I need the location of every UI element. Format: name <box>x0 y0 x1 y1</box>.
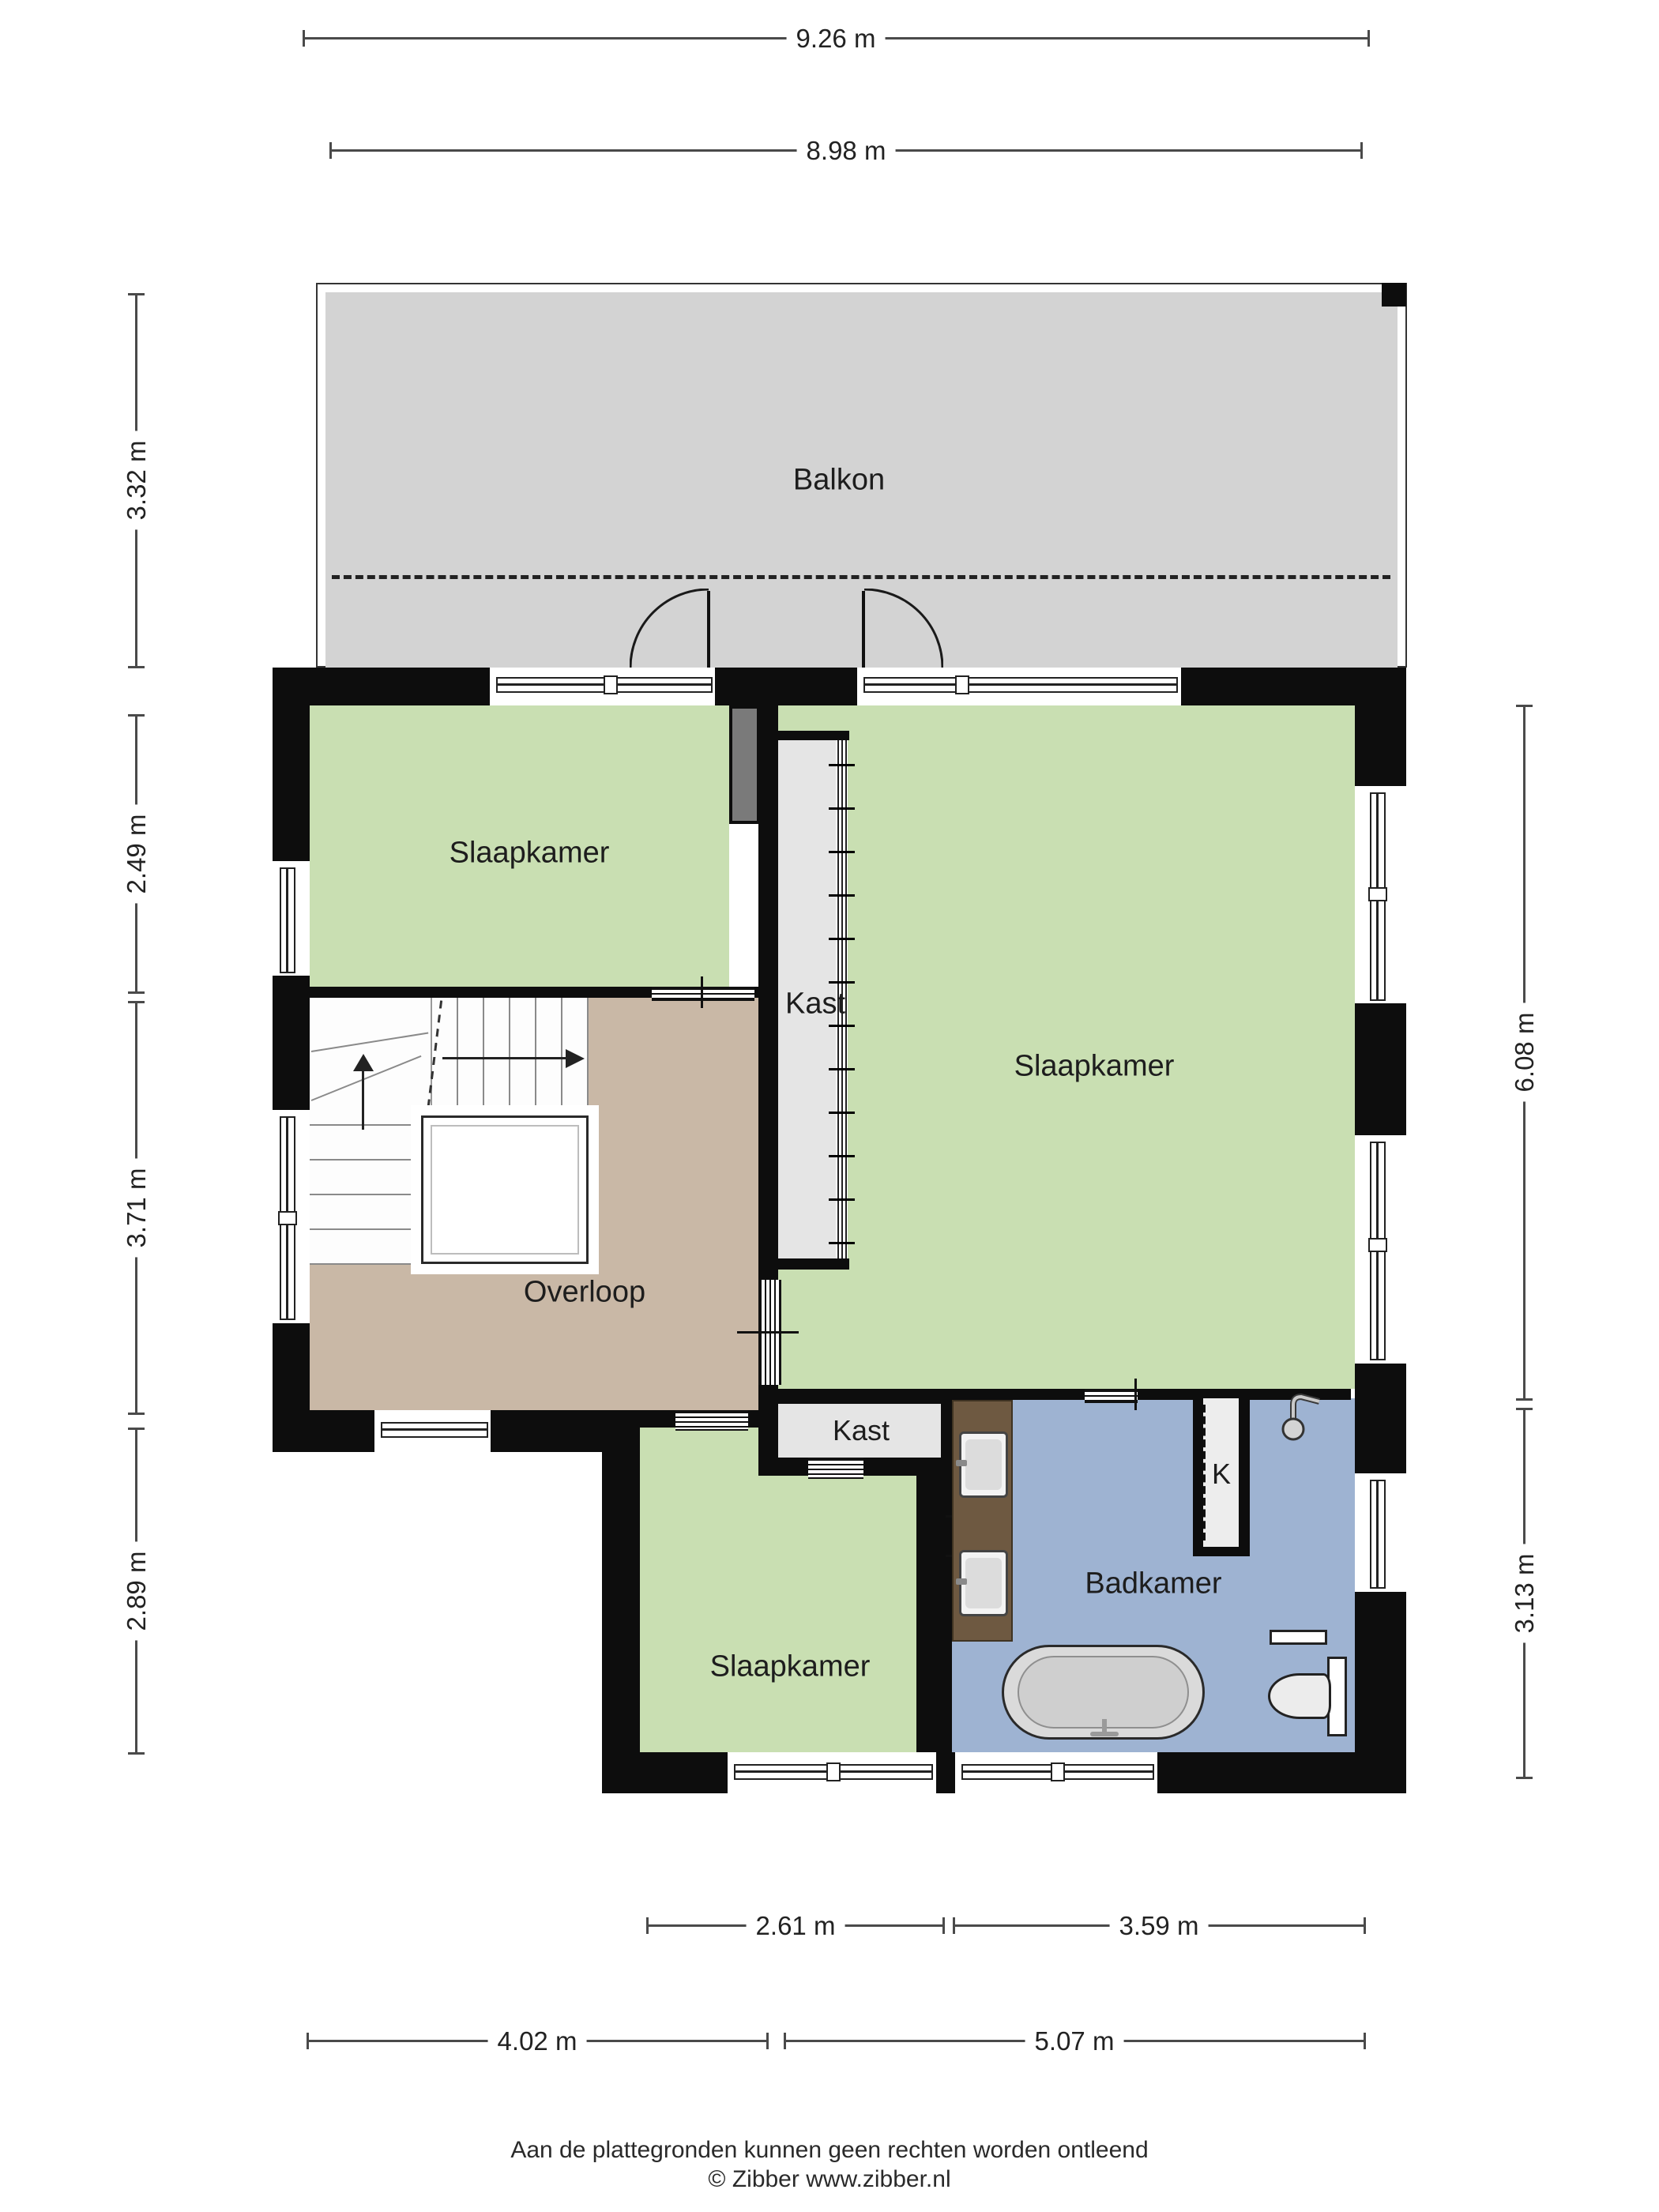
rail-tick <box>829 1198 855 1201</box>
bathtub-basin <box>1018 1656 1189 1729</box>
sink-basin <box>965 1439 1002 1490</box>
bathtub-faucet-spout <box>1102 1719 1107 1736</box>
window-mullion <box>955 675 969 694</box>
balcony-corner-post <box>1382 283 1406 307</box>
dimension-label: 3.13 m <box>1508 1544 1541 1643</box>
dimension-label: 3.71 m <box>120 1159 153 1258</box>
floorplan-canvas: Balkon Kast Kast <box>0 0 1659 2212</box>
wall-divider-sk3-badkamer <box>916 1476 952 1793</box>
radiator <box>1270 1630 1327 1645</box>
window-mullion <box>604 675 618 694</box>
stair-arrow-right-head <box>566 1049 585 1068</box>
window-glazing <box>863 677 1178 693</box>
sink-faucet <box>956 1460 967 1466</box>
dimension-label: 4.02 m <box>488 2025 587 2058</box>
window-glazing <box>280 867 295 973</box>
dimension-label: 3.59 m <box>1110 1909 1209 1943</box>
stair-tread <box>310 1263 431 1265</box>
wall-left <box>273 668 310 1452</box>
room-label-slaapkamer-right: Slaapkamer <box>1014 1050 1175 1084</box>
rail-tick <box>829 1242 855 1244</box>
chimney-block <box>729 705 760 824</box>
shower-head-icon <box>1264 1390 1335 1446</box>
stair-arrow-right-shaft <box>442 1057 567 1059</box>
window-mullion <box>278 1211 297 1225</box>
dimension-label: 2.89 m <box>120 1542 153 1641</box>
rail-tick <box>829 1155 855 1157</box>
room-label-k-closet: K <box>1212 1458 1231 1491</box>
k-closet-wall-left <box>1193 1398 1203 1547</box>
dimension-label: 5.07 m <box>1025 2025 1124 2058</box>
window-mullion <box>1368 1238 1387 1252</box>
door-swing-arc <box>863 589 943 668</box>
kast-small-wall-top <box>778 1396 952 1404</box>
door-threshold <box>652 987 754 1001</box>
room-label-slaapkamer-bottom: Slaapkamer <box>710 1650 871 1684</box>
footer-disclaimer: Aan de plattegronden kunnen geen rechten… <box>510 2137 1148 2164</box>
rail-tick <box>829 981 855 984</box>
room-label-overloop: Overloop <box>524 1276 645 1310</box>
door-threshold-tick <box>1134 1379 1137 1410</box>
rail-tick <box>829 1112 855 1114</box>
k-closet-wall-right <box>1239 1398 1250 1547</box>
rail-tick <box>829 1068 855 1070</box>
stair-arrow-up-shaft <box>362 1066 364 1130</box>
window-glazing <box>381 1422 488 1438</box>
dimension-label: 2.61 m <box>747 1909 845 1943</box>
door-threshold-tick <box>737 1331 799 1334</box>
sink-basin <box>965 1558 1002 1608</box>
dimension-label: 9.26 m <box>787 22 886 55</box>
door-threshold <box>1085 1389 1138 1403</box>
room-label-slaapkamer-topleft: Slaapkamer <box>450 837 610 871</box>
kast-tall-wall-bottom <box>778 1258 849 1270</box>
room-label-balkon: Balkon <box>793 464 885 498</box>
door-threshold-tick <box>701 976 703 1008</box>
door-threshold <box>808 1458 863 1479</box>
rail-tick <box>829 1025 855 1027</box>
wall-kast-left-lower <box>758 1385 778 1476</box>
rail-tick <box>829 764 855 766</box>
stair-tread <box>310 1194 431 1195</box>
stair-tread <box>310 1124 431 1126</box>
window-mullion <box>1368 887 1387 901</box>
room-label-kast-small: Kast <box>833 1414 890 1447</box>
stair-tread <box>310 1228 431 1230</box>
rail-tick <box>829 851 855 853</box>
window-mullion <box>826 1762 841 1781</box>
dimension-label: 2.49 m <box>120 805 153 904</box>
rail-tick <box>829 938 855 940</box>
dimension-label: 6.08 m <box>1508 1003 1541 1102</box>
dimension-label: 8.98 m <box>797 134 896 167</box>
dimension-label: 3.32 m <box>120 431 153 530</box>
balcony-edge-dashed-line <box>332 575 1390 579</box>
rail-tick <box>829 807 855 810</box>
door-threshold <box>675 1410 748 1431</box>
wall-kast-left <box>758 705 778 1280</box>
stair-flight-left <box>310 998 432 1264</box>
room-slaapkamer-right <box>778 705 1355 1389</box>
room-label-kast-tall: Kast <box>785 987 845 1021</box>
toilet-bowl <box>1268 1673 1331 1719</box>
sink-faucet <box>956 1578 967 1585</box>
kast-small-wall-bottom <box>778 1458 952 1476</box>
room-slaapkamer-bottom <box>640 1428 916 1752</box>
stair-tread <box>310 1159 431 1161</box>
k-closet-wall-bottom <box>1193 1547 1250 1556</box>
kast-tall-wall-top <box>778 731 849 740</box>
door-swing-arc <box>630 589 709 668</box>
wall-top <box>273 668 1406 705</box>
stairwell-void-inner-line <box>431 1125 579 1255</box>
room-label-badkamer: Badkamer <box>1085 1567 1221 1601</box>
stair-tread <box>587 998 589 1115</box>
window-mullion <box>1051 1762 1065 1781</box>
rail-tick <box>829 894 855 897</box>
footer-copyright: © Zibber www.zibber.nl <box>708 2166 950 2193</box>
window-glazing <box>1370 1480 1386 1589</box>
wall-step-left <box>602 1452 640 1793</box>
stair-arrow-up-head <box>353 1054 374 1071</box>
